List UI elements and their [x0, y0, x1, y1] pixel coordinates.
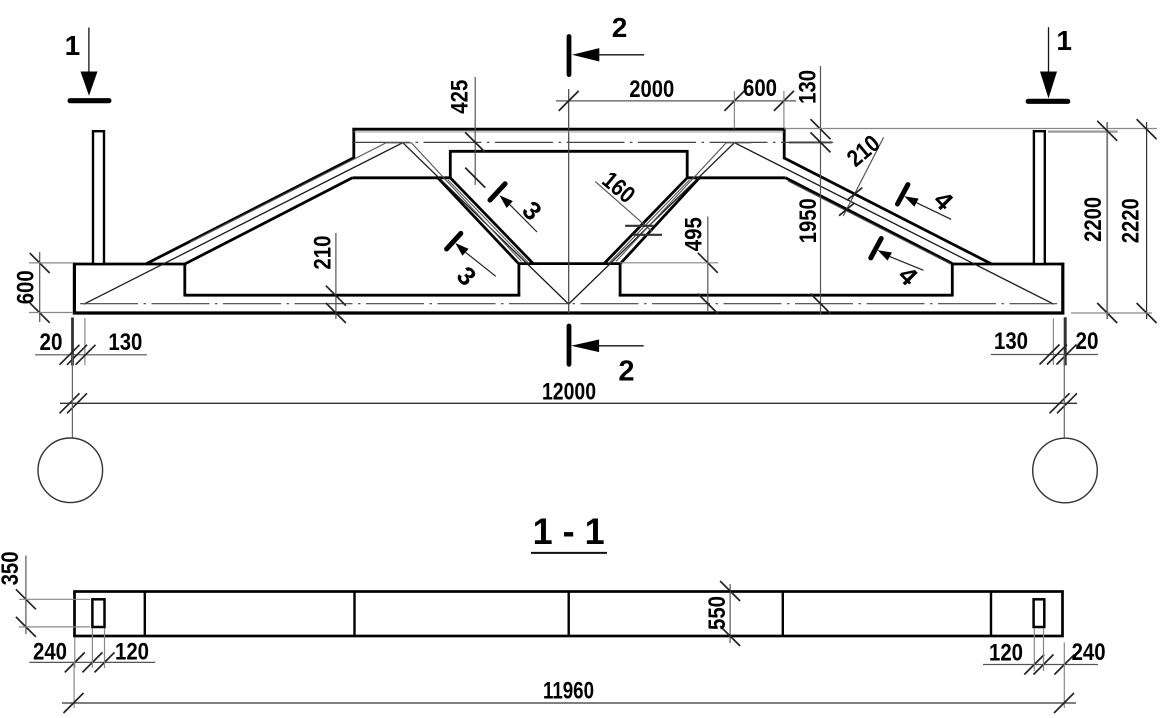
- svg-text:350: 350: [0, 551, 24, 585]
- svg-text:2: 2: [612, 12, 628, 43]
- svg-text:120: 120: [115, 639, 149, 666]
- svg-text:600: 600: [13, 270, 40, 304]
- svg-text:240: 240: [33, 639, 67, 666]
- svg-text:20: 20: [40, 329, 63, 356]
- svg-text:2: 2: [618, 355, 634, 387]
- svg-text:120: 120: [989, 640, 1023, 667]
- svg-text:1: 1: [65, 30, 81, 61]
- svg-text:11960: 11960: [543, 677, 594, 704]
- svg-text:3: 3: [516, 195, 547, 226]
- svg-text:12000: 12000: [542, 378, 596, 405]
- svg-text:2220: 2220: [1118, 198, 1145, 243]
- svg-text:130: 130: [795, 70, 822, 104]
- svg-text:210: 210: [842, 130, 885, 173]
- svg-text:1: 1: [1056, 25, 1072, 56]
- svg-text:425: 425: [447, 80, 474, 114]
- svg-text:3: 3: [451, 260, 482, 291]
- svg-text:130: 130: [994, 328, 1028, 355]
- svg-text:1950: 1950: [795, 198, 822, 243]
- svg-text:4: 4: [928, 185, 960, 217]
- svg-text:2000: 2000: [629, 76, 674, 103]
- svg-text:495: 495: [681, 217, 708, 251]
- svg-text:550: 550: [704, 596, 731, 630]
- svg-text:1 - 1: 1 - 1: [533, 511, 605, 552]
- svg-text:130: 130: [108, 329, 142, 356]
- svg-text:2200: 2200: [1080, 197, 1107, 242]
- svg-text:240: 240: [1072, 639, 1106, 666]
- svg-text:20: 20: [1076, 328, 1099, 355]
- svg-text:210: 210: [310, 236, 337, 270]
- svg-text:160: 160: [597, 166, 640, 209]
- svg-text:600: 600: [743, 75, 777, 102]
- svg-text:4: 4: [892, 260, 924, 292]
